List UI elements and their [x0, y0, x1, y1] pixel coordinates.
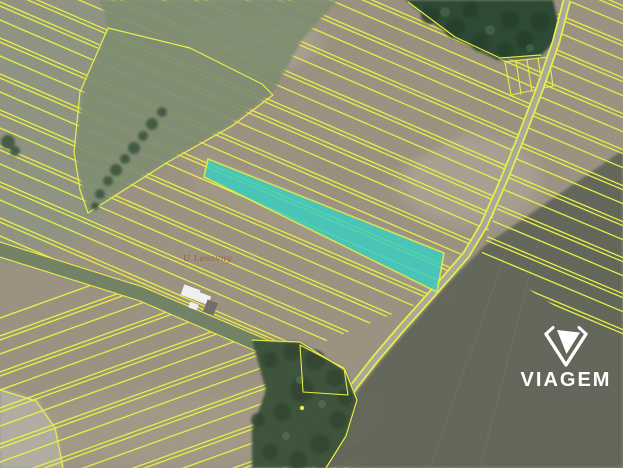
place-name-label: U Lesovny	[183, 254, 232, 264]
aerial-map-view: U Lesovny VIAGEM	[0, 0, 623, 468]
viagem-watermark: VIAGEM	[510, 324, 622, 390]
viagem-logo-text: VIAGEM	[510, 370, 622, 390]
cadastral-map-canvas	[0, 0, 623, 468]
viagem-gem-icon	[540, 324, 592, 368]
photo-noise	[0, 0, 623, 468]
